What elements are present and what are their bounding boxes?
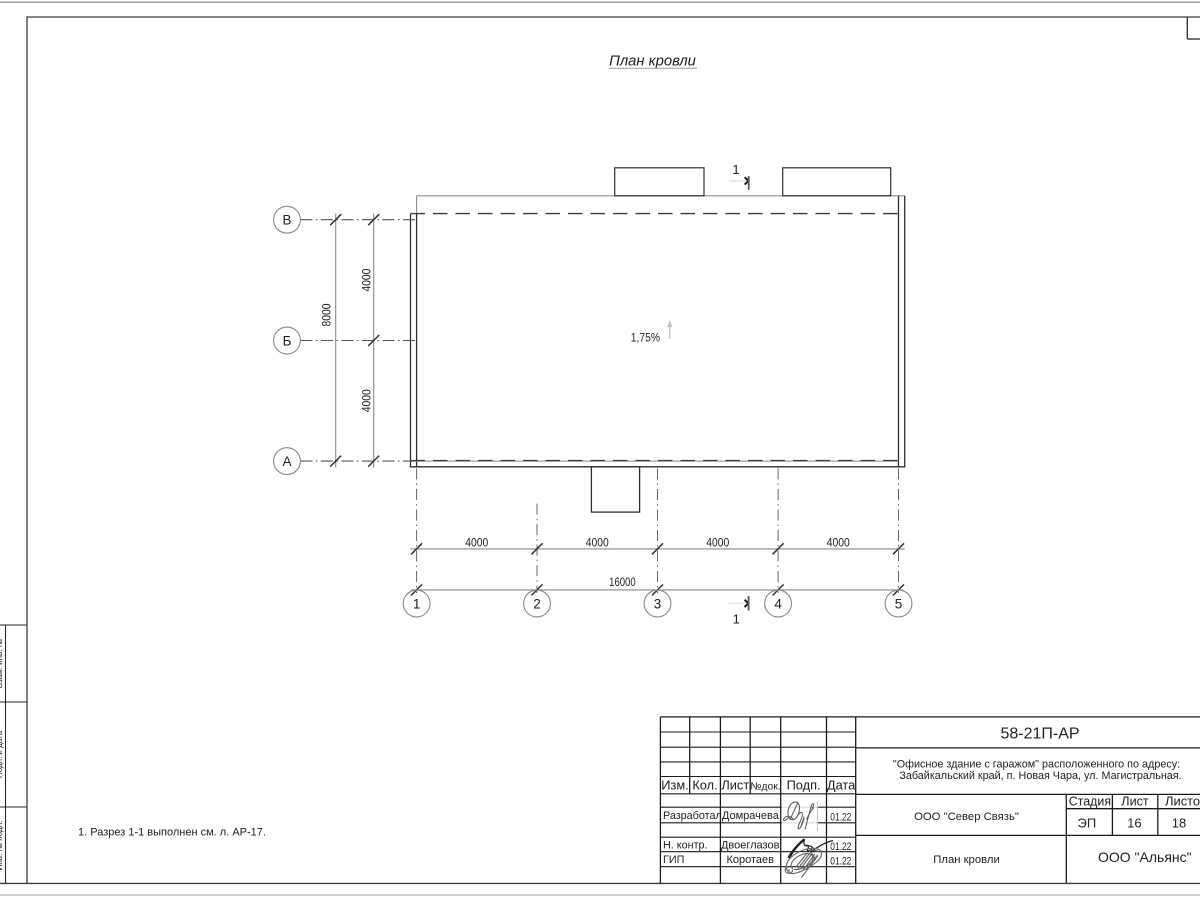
svg-text:Стадия: Стадия (1069, 795, 1111, 809)
svg-text:План кровли: План кровли (609, 54, 696, 70)
svg-text:1: 1 (413, 596, 421, 611)
svg-text:8000: 8000 (320, 303, 334, 326)
svg-text:01.22: 01.22 (830, 841, 851, 853)
svg-text:ООО "Альянс": ООО "Альянс" (1098, 849, 1192, 865)
svg-text:4000: 4000 (706, 535, 729, 549)
svg-text:Изм.: Изм. (661, 777, 688, 792)
svg-text:Забайкальский край, п. Новая Ч: Забайкальский край, п. Новая Чара, ул. М… (899, 770, 1181, 782)
svg-text:2: 2 (533, 596, 541, 611)
svg-text:01.22: 01.22 (830, 856, 851, 868)
svg-text:В: В (282, 213, 291, 228)
svg-text:01.22: 01.22 (830, 812, 851, 824)
svg-text:Листов: Листов (1165, 795, 1200, 809)
svg-text:ООО "Север Связь": ООО "Север Связь" (914, 811, 1019, 823)
svg-text:4000: 4000 (360, 268, 374, 291)
svg-text:1: 1 (733, 611, 740, 626)
svg-text:16: 16 (1127, 816, 1141, 831)
svg-text:4000: 4000 (827, 535, 850, 549)
svg-text:5: 5 (895, 596, 903, 611)
svg-text:План кровли: План кровли (933, 854, 1000, 866)
svg-text:Дата: Дата (827, 777, 856, 792)
svg-text:Взам. инв. №: Взам. инв. № (0, 638, 4, 688)
svg-text:Лист: Лист (1121, 795, 1149, 809)
svg-text:ЭП: ЭП (1078, 816, 1097, 831)
svg-text:4000: 4000 (586, 535, 609, 549)
svg-text:4000: 4000 (465, 535, 488, 549)
svg-text:Разработал: Разработал (663, 810, 722, 822)
svg-text:"Офисное здание с гаражом" рас: "Офисное здание с гаражом" расположенног… (893, 758, 1180, 770)
svg-text:Подп. и дата: Подп. и дата (0, 730, 4, 778)
svg-text:ГИП: ГИП (663, 854, 684, 866)
svg-text:Двоеглазов: Двоеглазов (721, 840, 780, 852)
svg-text:Подп.: Подп. (787, 777, 821, 792)
svg-text:1. Разрез 1-1 выполнен см. л.: 1. Разрез 1-1 выполнен см. л. АР-17. (78, 827, 266, 839)
svg-text:Кол.: Кол. (692, 777, 717, 792)
svg-text:16000: 16000 (609, 575, 636, 589)
svg-text:1: 1 (732, 162, 739, 177)
svg-text:58-21П-АР: 58-21П-АР (1000, 726, 1079, 743)
svg-text:А: А (282, 454, 291, 469)
svg-text:4: 4 (774, 596, 782, 611)
svg-text:Коротаев: Коротаев (726, 854, 774, 866)
svg-text:Инв. № подл.: Инв. № подл. (0, 821, 4, 871)
svg-text:Лист: Лист (721, 777, 749, 792)
svg-text:1,75%: 1,75% (631, 331, 660, 345)
svg-text:3: 3 (654, 596, 662, 611)
svg-text:18: 18 (1172, 816, 1186, 831)
svg-text:4000: 4000 (360, 389, 374, 412)
svg-text:Б: Б (283, 333, 292, 348)
svg-text:Домрачева: Домрачева (722, 810, 780, 822)
svg-text:Н. контр.: Н. контр. (663, 840, 708, 852)
svg-text:№док.: №док. (750, 781, 780, 792)
